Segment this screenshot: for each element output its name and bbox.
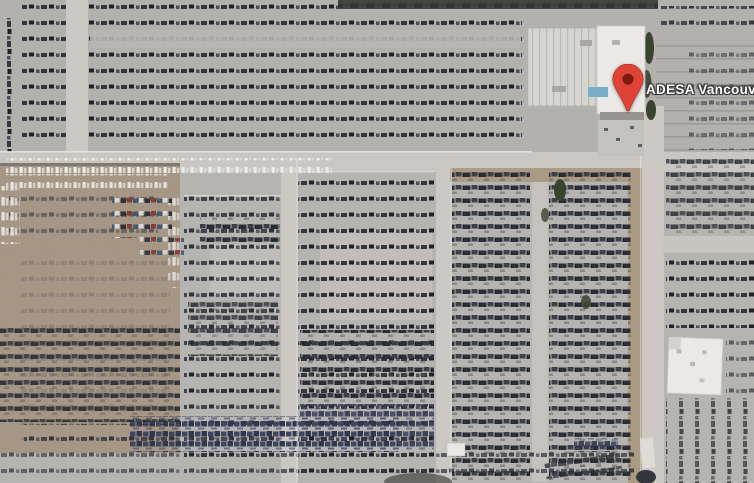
warehouse-building — [667, 337, 723, 395]
vertical-road-left — [66, 0, 88, 155]
white-trailer — [447, 443, 465, 456]
place-label[interactable]: ADESA Vancouv — [646, 82, 754, 97]
bush — [554, 179, 566, 201]
vertical-road-right — [640, 106, 664, 483]
white-truck — [640, 437, 656, 468]
pin-dot — [622, 74, 633, 85]
pin-body — [613, 64, 643, 111]
vertical-road-center-2 — [436, 160, 451, 483]
map-pin-icon[interactable] — [612, 64, 644, 112]
satellite-map-view[interactable]: ADESA Vancouv — [0, 0, 754, 483]
teal-awning — [588, 87, 608, 97]
horizontal-road-right — [662, 236, 754, 253]
fence-line — [0, 163, 180, 166]
tree-row — [644, 32, 654, 64]
